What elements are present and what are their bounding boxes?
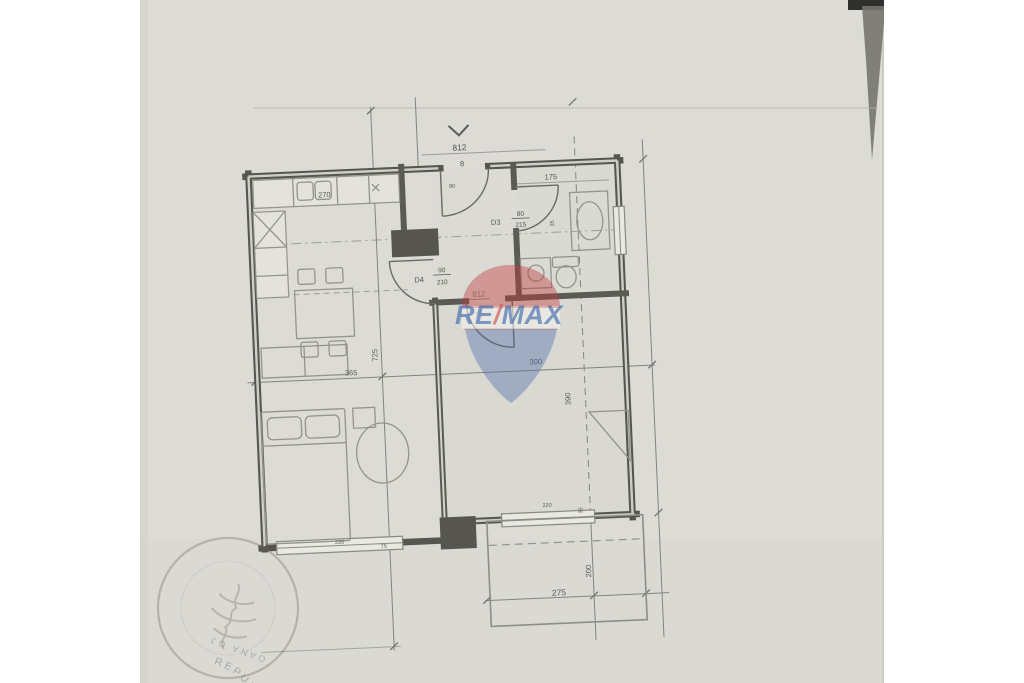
wordmark-re: RE (455, 300, 494, 330)
wall-bath-left-upper (513, 165, 514, 187)
dim-bath: 175 (544, 172, 557, 182)
floorplan-scan: 270 175 365 300 725 390 275 200 35 220 7… (0, 0, 1024, 683)
dim-balcony-width: 275 (552, 587, 567, 598)
paper-shade-bottom (140, 540, 884, 683)
dim-living-window: 220 (542, 503, 551, 509)
dim-bed-window-jamb: 75 (381, 544, 387, 550)
entrance-dim-top: 812 (452, 142, 467, 153)
entrance-dim-width: 90 (449, 184, 455, 190)
door-d3-width: 80 (517, 211, 525, 218)
remax-wordmark: RE/MAX (455, 300, 565, 330)
door-d3-height: 215 (515, 222, 527, 229)
wall-entry-left (401, 167, 404, 233)
dim-left-height: 725 (370, 349, 380, 362)
dim-living-height: 390 (563, 392, 573, 405)
wordmark-max: MAX (502, 300, 565, 330)
door-d4-height: 210 (437, 279, 449, 286)
door-d4-width: 90 (438, 267, 446, 274)
wall-pier-block (440, 516, 477, 550)
dim-kitchen: 270 (318, 190, 331, 200)
paper-left-edge (140, 0, 148, 683)
dim-bedroom-width: 365 (345, 368, 358, 378)
dim-living-window-jamb: 35 (578, 507, 584, 513)
door-d3-id: D3 (491, 218, 501, 227)
scanned-floorplan-page: 270 175 365 300 725 390 275 200 35 220 7… (0, 0, 1024, 683)
bedroom-floor (260, 372, 442, 545)
entrance-dim-mid: 8 (460, 159, 465, 168)
dim-bath-jamb: 35 (550, 220, 556, 226)
kitchen-side-counter (253, 211, 289, 298)
dim-bed-window: 220 (335, 540, 344, 546)
shaft-block (391, 228, 439, 257)
dim-balcony-depth: 200 (584, 565, 594, 578)
door-d4-id: D4 (414, 275, 424, 284)
